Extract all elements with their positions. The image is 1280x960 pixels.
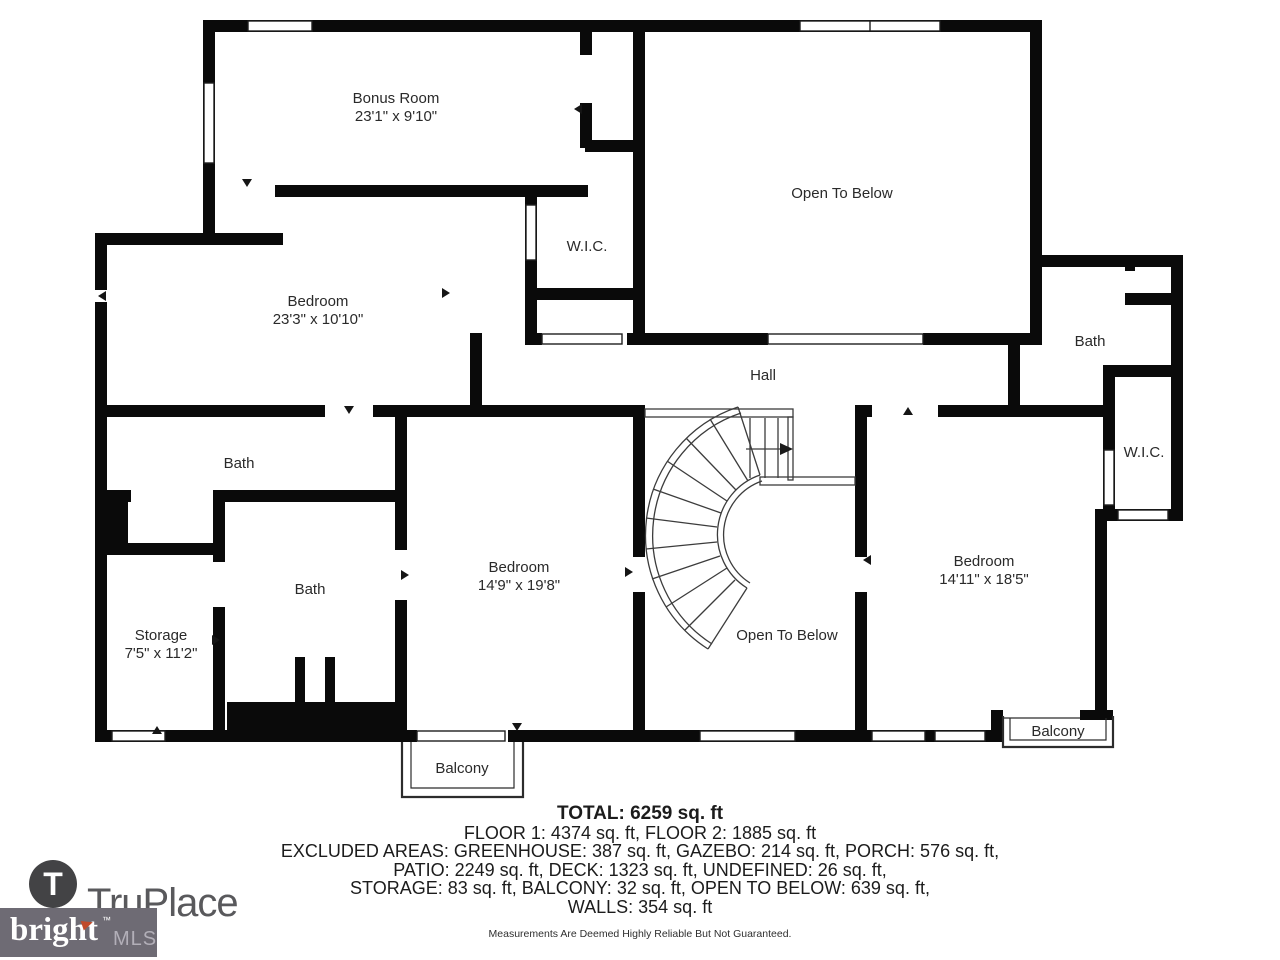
curved-staircase — [645, 407, 855, 649]
room-dims: 14'11" x 18'5" — [939, 571, 1029, 589]
room-label-hall: Hall — [750, 367, 776, 385]
door-arrow-icon — [401, 570, 409, 580]
room-dims: 23'1" x 9'10" — [353, 108, 440, 126]
room-label-bath-upper-right: Bath — [1075, 333, 1106, 351]
door-arrow-icon — [442, 288, 450, 298]
room-name: Bedroom — [939, 553, 1029, 571]
room-label-storage: Storage 7'5" x 11'2" — [125, 627, 198, 663]
room-dims: 7'5" x 11'2" — [125, 645, 198, 663]
room-label-balcony-right: Balcony — [1031, 723, 1084, 741]
floor-areas-text: FLOOR 1: 4374 sq. ft, FLOOR 2: 1885 sq. … — [0, 824, 1280, 843]
room-label-bedroom-left: Bedroom 23'3" x 10'10" — [273, 293, 364, 329]
walls-layer — [95, 20, 1183, 742]
total-area-text: TOTAL: 6259 sq. ft — [0, 805, 1280, 824]
room-label-bedroom-middle: Bedroom 14'9" x 19'8" — [478, 559, 560, 595]
room-label-bath-left-lower: Bath — [295, 581, 326, 599]
trademark-symbol: ™ — [102, 915, 111, 925]
room-name: Bedroom — [478, 559, 560, 577]
room-label-wic-upper: W.I.C. — [567, 238, 608, 256]
door-arrow-icon — [574, 104, 582, 114]
door-arrow-icon — [903, 407, 913, 415]
mls-wordmark: MLS — [113, 928, 157, 951]
room-label-bedroom-right: Bedroom 14'11" x 18'5" — [939, 553, 1029, 589]
room-label-open-to-below-upper: Open To Below — [791, 185, 892, 203]
door-arrow-icon — [512, 723, 522, 731]
stairs-direction-arrow-icon — [780, 443, 793, 455]
room-dims: 23'3" x 10'10" — [273, 311, 364, 329]
door-arrow-icon — [344, 406, 354, 414]
bright-mls-logo: bright ™ MLS — [0, 908, 157, 957]
truplace-logo-letter: T — [43, 866, 63, 903]
room-label-open-to-below-lower: Open To Below — [736, 627, 837, 645]
door-arrow-icon — [98, 291, 106, 301]
disclaimer-text: Measurements Are Deemed Highly Reliable … — [0, 925, 1280, 944]
room-dims: 14'9" x 19'8" — [478, 577, 560, 595]
door-arrow-icon — [242, 179, 252, 187]
room-label-bonus-room: Bonus Room 23'1" x 9'10" — [353, 90, 440, 126]
room-label-bath-left-upper: Bath — [224, 455, 255, 473]
truplace-logo-icon: T — [29, 860, 77, 908]
floor-plan-page: Bonus Room 23'1" x 9'10" Open To Below W… — [0, 0, 1280, 960]
excluded-areas-text: EXCLUDED AREAS: GREENHOUSE: 387 sq. ft, … — [0, 842, 1280, 861]
balconies-layer — [402, 716, 1113, 797]
room-name: Bedroom — [273, 293, 364, 311]
room-label-balcony-bottom: Balcony — [435, 760, 488, 778]
room-label-wic-right: W.I.C. — [1124, 444, 1165, 462]
door-arrow-icon — [625, 567, 633, 577]
room-name: Bonus Room — [353, 90, 440, 108]
excluded-areas-text: PATIO: 2249 sq. ft, DECK: 1323 sq. ft, U… — [0, 861, 1280, 880]
room-name: Storage — [125, 627, 198, 645]
